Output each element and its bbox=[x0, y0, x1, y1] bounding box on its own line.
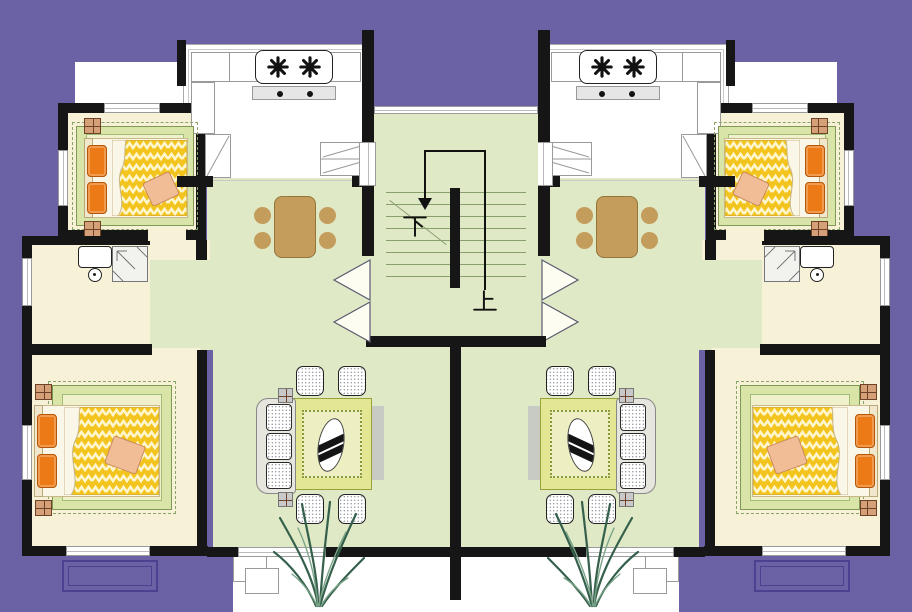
shower-right bbox=[764, 246, 800, 282]
wall-stairwell-bottom bbox=[366, 336, 546, 347]
bed-blanket bbox=[112, 140, 187, 216]
wall-kitchen-corner-right bbox=[726, 40, 735, 86]
window-bedroom-bottom-left-right bbox=[880, 425, 890, 480]
shower bbox=[112, 246, 148, 282]
dining-chair-right bbox=[576, 207, 593, 224]
armchair bbox=[296, 366, 324, 396]
window-bedroom-bottom-left bbox=[22, 425, 32, 480]
nightstand-right bbox=[811, 118, 828, 134]
counter-divider-right bbox=[682, 52, 683, 82]
window-stairwell-side-right bbox=[536, 142, 553, 186]
wall-bedroom-bottom-right-right bbox=[705, 350, 715, 556]
door-gap-bedroom-top-right bbox=[726, 229, 764, 241]
stove-burner-icon-right bbox=[591, 56, 613, 78]
tv-cabinet bbox=[372, 406, 384, 480]
balcony-top-right bbox=[727, 62, 837, 108]
toilet-drain bbox=[93, 273, 96, 276]
down-glyph-icon bbox=[402, 212, 428, 238]
window-bathroom-left-right bbox=[880, 258, 890, 306]
pillow-right bbox=[805, 145, 825, 177]
wall-kitchen-bottom-left-right bbox=[699, 176, 735, 187]
nightstand-right bbox=[860, 500, 877, 516]
door-gap-bedroom-top bbox=[148, 229, 186, 241]
dining-chair bbox=[254, 232, 271, 249]
stairs-up-label: 上 bbox=[472, 288, 498, 314]
shower-lines bbox=[113, 247, 147, 281]
wall-kitchen-bottom-left bbox=[177, 176, 213, 187]
fridge-right bbox=[681, 134, 707, 178]
oven-knob bbox=[307, 91, 313, 97]
toilet-bowl-right bbox=[810, 268, 824, 282]
stair-arrowhead-icon bbox=[418, 198, 432, 210]
bed-blanket-right bbox=[725, 140, 800, 216]
pillow-right bbox=[805, 182, 825, 214]
stair-arrow-right bbox=[484, 150, 486, 290]
stove-right bbox=[579, 50, 657, 84]
plant bbox=[268, 498, 368, 610]
window-bedroom-bottom bbox=[66, 546, 150, 556]
window-bedroom-top bbox=[104, 103, 160, 113]
sofa-seat bbox=[266, 404, 292, 431]
stairwell-top-window bbox=[374, 106, 538, 114]
pillow bbox=[87, 182, 107, 214]
toilet-tank-right bbox=[800, 246, 834, 268]
entry-door-symbol bbox=[330, 258, 372, 344]
shoe-cabinet bbox=[320, 142, 364, 176]
window-bedroom-top-right bbox=[752, 103, 808, 113]
kitchen-counter-side bbox=[191, 82, 215, 134]
stair-arrow-left bbox=[424, 150, 426, 198]
sofa-seat bbox=[266, 462, 292, 489]
fridge bbox=[205, 134, 231, 178]
wall-hall-stub bbox=[196, 240, 207, 260]
dining-table-right bbox=[596, 196, 638, 258]
window-bedroom-bottom-right bbox=[762, 546, 846, 556]
side-table bbox=[278, 388, 293, 403]
armchair bbox=[338, 366, 366, 396]
wall-bathroom-bottom-right bbox=[760, 344, 890, 355]
wall-bathroom-top-right bbox=[762, 236, 890, 245]
fridge-fold-line-right bbox=[682, 135, 706, 177]
oven-panel-right bbox=[576, 86, 660, 100]
nightstand bbox=[35, 500, 52, 516]
pillow-right bbox=[855, 454, 875, 488]
window-bedroom-left bbox=[58, 150, 68, 206]
dining-chair bbox=[254, 207, 271, 224]
balcony-bottom-inner-right bbox=[760, 566, 844, 586]
pillow-right bbox=[855, 414, 875, 448]
counter-divider bbox=[229, 52, 230, 82]
dining-table bbox=[274, 196, 316, 258]
dining-chair-right bbox=[641, 207, 658, 224]
sofa-seat-right bbox=[620, 404, 646, 431]
wall-stairwell-left-upper-right bbox=[538, 30, 550, 142]
wall-stairwell-left-lower bbox=[362, 186, 374, 256]
plant-right bbox=[544, 498, 644, 610]
wall-kitchen-corner bbox=[177, 40, 186, 86]
wall-stairwell-left-upper bbox=[362, 30, 374, 142]
toilet-tank bbox=[78, 246, 112, 268]
balcony-top bbox=[75, 62, 185, 108]
wall-center-divider bbox=[450, 347, 461, 600]
sofa-seat-right bbox=[620, 462, 646, 489]
stove-burner-icon bbox=[267, 56, 289, 78]
dining-chair bbox=[319, 207, 336, 224]
floor-plan: 下 上 bbox=[0, 0, 912, 612]
shoe-cabinet-lines bbox=[321, 143, 363, 175]
shoe-cabinet-right bbox=[548, 142, 592, 176]
nightstand-right bbox=[860, 384, 877, 400]
nightstand bbox=[35, 384, 52, 400]
balcony-bottom-inner bbox=[68, 566, 152, 586]
pillow bbox=[87, 145, 107, 177]
stair-arrow-top bbox=[424, 150, 486, 152]
wall-stairwell-left-lower-right bbox=[538, 186, 550, 256]
pillow bbox=[37, 414, 57, 448]
nightstand-right bbox=[811, 221, 828, 237]
oven-knob-right bbox=[599, 91, 605, 97]
stove bbox=[255, 50, 333, 84]
stair-divider bbox=[450, 188, 460, 288]
wall-hall-stub-right bbox=[705, 240, 716, 260]
tv-cabinet-right bbox=[528, 406, 540, 480]
wall-bedroom-bottom-right bbox=[197, 350, 207, 556]
stove-burner-icon-right bbox=[623, 56, 645, 78]
dining-chair-right bbox=[576, 232, 593, 249]
shower-lines-right bbox=[765, 247, 799, 281]
armchair-right bbox=[546, 366, 574, 396]
dining-chair-right bbox=[641, 232, 658, 249]
shoe-cabinet-lines-right bbox=[549, 143, 591, 175]
wall-bathroom-bottom bbox=[22, 344, 152, 355]
stairs-down-label: 下 bbox=[402, 212, 428, 238]
sofa-seat bbox=[266, 433, 292, 460]
fridge-fold-line bbox=[206, 135, 230, 177]
stove-burner-icon bbox=[299, 56, 321, 78]
nightstand bbox=[84, 118, 101, 134]
wall-bathroom-top bbox=[22, 236, 150, 245]
pillow bbox=[37, 454, 57, 488]
window-bedroom-left-right bbox=[844, 150, 854, 206]
oven-knob bbox=[277, 91, 283, 97]
side-table-right bbox=[619, 388, 634, 403]
up-glyph-icon bbox=[472, 288, 498, 314]
dining-chair bbox=[319, 232, 336, 249]
toilet-drain-right bbox=[816, 273, 819, 276]
entry-door-symbol-right bbox=[540, 258, 582, 344]
oven-knob-right bbox=[629, 91, 635, 97]
window-stairwell-side bbox=[359, 142, 376, 186]
nightstand bbox=[84, 221, 101, 237]
oven-panel bbox=[252, 86, 336, 100]
window-bathroom-left bbox=[22, 258, 32, 306]
armchair-right bbox=[588, 366, 616, 396]
toilet-bowl bbox=[88, 268, 102, 282]
sofa-seat-right bbox=[620, 433, 646, 460]
